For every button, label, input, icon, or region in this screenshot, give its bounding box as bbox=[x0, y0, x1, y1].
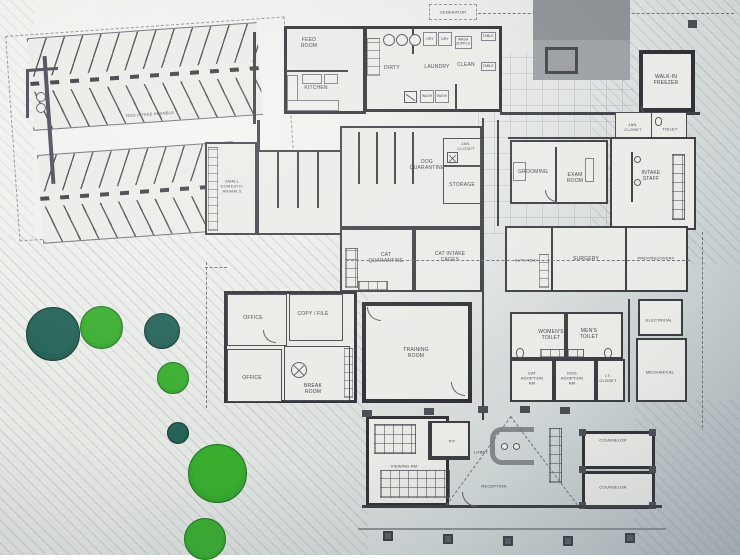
room-label-dog-adoption: DOG ADOPTION RM bbox=[561, 371, 584, 386]
tank-symbol bbox=[36, 92, 46, 102]
room-label-break: BREAK ROOM bbox=[304, 383, 322, 396]
kitchen-counter bbox=[287, 100, 339, 111]
mop-sink bbox=[447, 152, 458, 163]
room-holding-runs bbox=[257, 150, 345, 235]
room-label-kitchen: KITCHEN bbox=[304, 85, 327, 91]
generator-label: GENERATOR bbox=[440, 10, 467, 15]
property-dashed-line bbox=[702, 232, 703, 428]
equip-label-wash-supplies: WASH SUPPLS bbox=[456, 38, 470, 47]
room-label-jan-closet-2: JAN. CLOSET bbox=[624, 122, 641, 132]
stool-symbol bbox=[513, 443, 520, 450]
tree-symbol-bright bbox=[184, 518, 226, 560]
tree-symbol-dark bbox=[26, 307, 80, 361]
porch-column bbox=[383, 531, 393, 541]
wall-segment bbox=[257, 120, 260, 152]
chair-symbol bbox=[634, 156, 641, 163]
chair-symbol bbox=[634, 179, 641, 186]
equip-label-wash: WASH bbox=[422, 94, 432, 98]
run-divider bbox=[376, 132, 378, 184]
pilaster bbox=[649, 429, 656, 436]
room-label-laundry: LAUNDRY bbox=[424, 64, 449, 70]
wall-segment bbox=[551, 228, 553, 290]
washer-symbol bbox=[396, 34, 408, 46]
reception-desk bbox=[490, 427, 534, 465]
cat-cage-bank bbox=[358, 281, 388, 291]
tree-symbol-bright bbox=[80, 306, 123, 349]
room-label-storage: STORAGE bbox=[449, 182, 475, 188]
corridor-wall bbox=[482, 118, 484, 420]
stool-symbol bbox=[501, 443, 508, 450]
room-label-cat-intake: CAT INTAKE CAGES bbox=[435, 251, 466, 264]
room-label-viewing: VIEWING RM bbox=[391, 464, 418, 469]
run-divider bbox=[297, 152, 299, 208]
room-label-counselor-1: COUNSELOR bbox=[599, 438, 626, 443]
equip-label-dry: DRY bbox=[426, 37, 433, 41]
room-label-toilet: TOILET bbox=[662, 127, 677, 132]
room-label-reception: RECEPTION bbox=[481, 484, 506, 489]
room-label-womens: WOMEN'S TOILET bbox=[538, 329, 563, 342]
room-counselor-2 bbox=[582, 471, 655, 509]
porch-column bbox=[625, 533, 635, 543]
kitchen-counter bbox=[324, 74, 338, 84]
wall-segment bbox=[253, 32, 256, 124]
corridor-wall bbox=[628, 299, 630, 402]
wall-segment bbox=[26, 70, 29, 118]
pilaster bbox=[579, 466, 586, 473]
run-divider bbox=[358, 132, 360, 184]
room-copy-file bbox=[289, 294, 343, 341]
floor-plan-photo: DOG INTAKE KENNELS GENERATOR FEED ROOM K… bbox=[0, 0, 740, 555]
laundry-lockers bbox=[367, 38, 380, 76]
tree-symbol-dark bbox=[167, 422, 189, 444]
room-label-dog-quarantine: DOG QUARANTINE bbox=[410, 159, 445, 172]
run-divider bbox=[317, 152, 319, 208]
break-counter bbox=[344, 348, 353, 398]
room-label-electrical: ELECTRICAL bbox=[646, 318, 673, 323]
property-dashed-line bbox=[206, 262, 207, 408]
room-label-copy-file: COPY / FILE bbox=[297, 311, 328, 317]
site-marker bbox=[688, 20, 697, 28]
room-label-cat-quarantine: CAT QUARANTINE bbox=[369, 252, 404, 265]
tank-symbol bbox=[36, 103, 46, 113]
toilet-fixture bbox=[604, 348, 612, 358]
room-label-training: TRAINING ROOM bbox=[403, 347, 429, 360]
zone-label-dirty: DIRTY bbox=[384, 65, 400, 71]
corridor-wall bbox=[497, 120, 499, 226]
kitchen-counter bbox=[302, 74, 322, 84]
wall-segment bbox=[286, 70, 348, 72]
toilet-fixture bbox=[655, 117, 662, 126]
pilaster bbox=[520, 406, 530, 413]
room-label-feed: FEED ROOM bbox=[301, 37, 317, 50]
equip-label-table: TABLE bbox=[483, 34, 494, 38]
room-label-surgery: SURGERY bbox=[573, 256, 599, 262]
washer-symbol bbox=[409, 34, 421, 46]
toilet-fixture bbox=[516, 348, 524, 358]
wall-segment bbox=[455, 84, 457, 110]
match-dashed-line bbox=[346, 260, 690, 261]
tree-symbol-bright bbox=[157, 362, 189, 394]
intake-cage-bank bbox=[672, 154, 685, 220]
room-label-mechanical: MECHANICAL bbox=[646, 370, 674, 375]
property-dashed-line bbox=[205, 267, 227, 268]
cart-x bbox=[406, 94, 416, 101]
room-label-office-1: OFFICE bbox=[243, 315, 263, 321]
service-pad-dark bbox=[533, 0, 630, 40]
room-label-it-closet: I.T. CLOSET bbox=[599, 373, 616, 383]
porch-column bbox=[563, 536, 573, 546]
cart-box bbox=[404, 91, 417, 103]
intake-counter bbox=[631, 152, 633, 202]
cat-cage-bank bbox=[345, 248, 358, 288]
porch-column bbox=[503, 536, 513, 546]
room-label-mens: MEN'S TOILET bbox=[580, 328, 599, 341]
room-label-office-2: OFFICE bbox=[242, 375, 262, 381]
run-divider bbox=[277, 152, 279, 208]
room-label-cat-adoption: CAT ADOPTION RM bbox=[521, 371, 544, 386]
zone-label-clean: CLEAN bbox=[457, 62, 475, 68]
viewing-cage-bank bbox=[380, 470, 450, 498]
pilaster bbox=[424, 408, 434, 415]
sink-bank bbox=[540, 349, 584, 358]
pilaster bbox=[579, 429, 586, 436]
room-label-jan-closet-1: JAN. CLOSET bbox=[457, 141, 474, 151]
pilaster bbox=[478, 406, 488, 413]
room-label-exam: EXAM ROOM bbox=[567, 172, 583, 185]
pilaster bbox=[362, 410, 372, 417]
equip-label-dry: DRY bbox=[441, 37, 448, 41]
room-label-small-domestic: SMALL DOMESTIC ANIMALS bbox=[221, 179, 244, 194]
shelf-bank bbox=[208, 147, 218, 231]
porch-column bbox=[443, 534, 453, 544]
washer-symbol bbox=[383, 34, 395, 46]
compactor bbox=[545, 47, 578, 74]
wall-segment bbox=[625, 228, 627, 290]
tree-symbol-dark bbox=[144, 313, 180, 349]
break-table bbox=[291, 362, 307, 378]
room-label-counselor-2: COUNSELOR bbox=[599, 485, 626, 490]
pilaster bbox=[560, 407, 570, 414]
room-label-pit: PIT bbox=[449, 439, 456, 444]
tree-symbol-bright bbox=[188, 444, 247, 503]
room-label-grooming: GROOMING bbox=[518, 169, 548, 175]
room-label-freezer: WALK-IN FREEZER bbox=[654, 74, 679, 87]
pilaster bbox=[649, 466, 656, 473]
equip-label-table: TABLE bbox=[483, 64, 494, 68]
viewing-cage-bank bbox=[374, 424, 416, 454]
wall-segment bbox=[362, 505, 662, 508]
run-divider bbox=[394, 132, 396, 184]
equip-label-wash: WASH bbox=[437, 94, 447, 98]
room-label-intake-staff: INTAKE STAFF bbox=[642, 170, 661, 183]
exam-counter bbox=[585, 158, 594, 182]
porch-edge bbox=[358, 528, 666, 530]
